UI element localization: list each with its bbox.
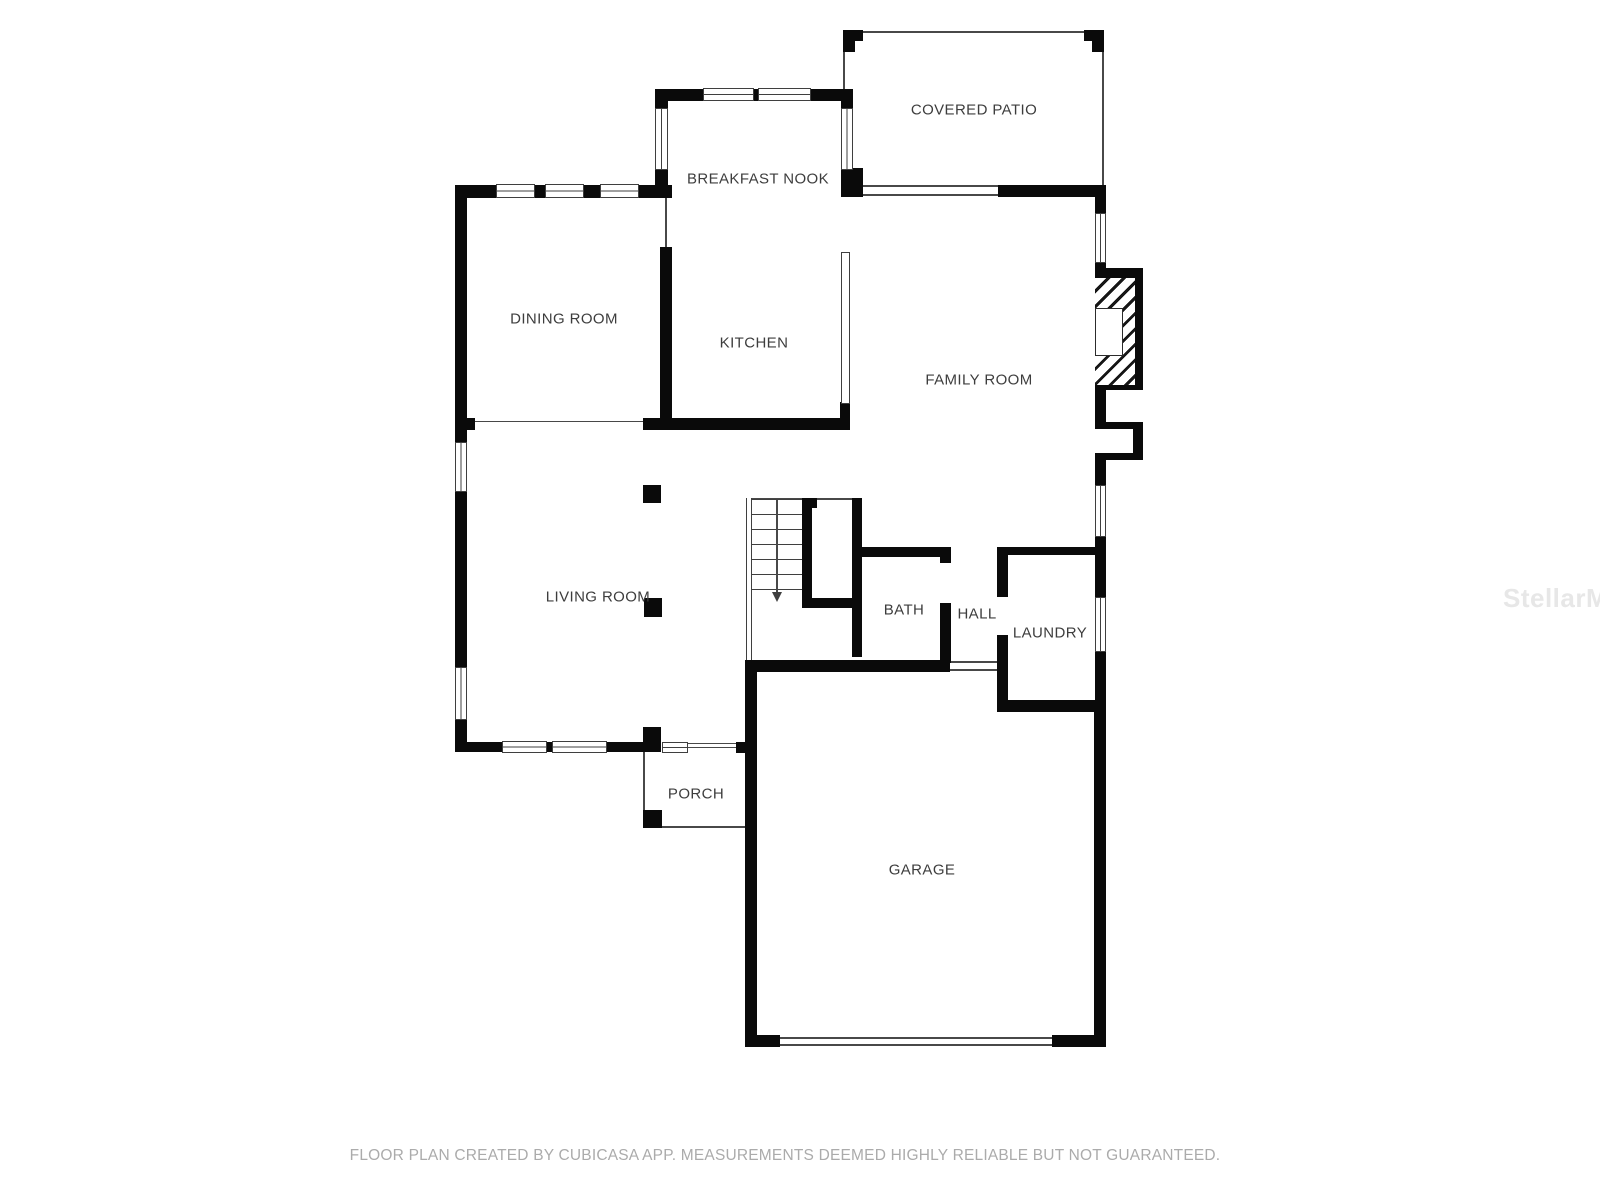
watermark-stellar-mls: StellarMLS (1503, 583, 1600, 614)
stairs-down-arrow (772, 592, 782, 602)
patio-wall-line (1102, 31, 1104, 189)
garage-door-line (780, 1037, 1052, 1039)
room-label-kitchen: KITCHEN (720, 335, 789, 352)
sliding-door-line (863, 185, 998, 187)
room-label-garage: GARAGE (889, 862, 956, 879)
wall-segment (455, 742, 502, 752)
column (643, 485, 661, 503)
window (552, 741, 607, 753)
wall-segment (852, 498, 862, 657)
window (455, 667, 467, 720)
wall-segment (736, 742, 757, 753)
wall-niche-opening (1095, 429, 1133, 453)
wall-segment (660, 418, 850, 430)
patio-wall-line (843, 31, 1104, 33)
opening-line (665, 198, 667, 247)
wall-segment (655, 89, 853, 101)
wall-segment (802, 498, 812, 608)
porch-post (643, 727, 661, 752)
wall-segment (1095, 460, 1106, 485)
wall-segment (1095, 390, 1106, 422)
wall-segment (1095, 197, 1106, 213)
fireplace-firebox (1095, 308, 1123, 356)
wall-segment (802, 498, 817, 508)
window (841, 108, 853, 170)
wall-segment (1095, 537, 1106, 547)
opening-line (475, 421, 643, 422)
stairs-direction-line (776, 500, 778, 594)
patio-corner-post (843, 30, 855, 52)
room-label-breakfast-nook: BREAKFAST NOOK (687, 171, 829, 188)
wall-segment (455, 492, 467, 667)
window (545, 184, 584, 198)
porch-post (643, 810, 662, 828)
door-threshold-line (950, 661, 997, 663)
room-label-dining-room: DINING ROOM (510, 311, 618, 328)
garage-door-line (780, 1044, 1052, 1046)
sliding-door-line (863, 194, 998, 196)
window (1095, 597, 1106, 652)
door-threshold-line (950, 669, 997, 671)
window (502, 741, 547, 753)
wall-segment (455, 418, 475, 430)
wall-segment (607, 742, 645, 752)
footer-disclaimer: FLOOR PLAN CREATED BY CUBICASA APP. MEAS… (0, 1147, 1570, 1165)
wall-segment (940, 547, 951, 563)
room-label-family-room: FAMILY ROOM (925, 372, 1032, 389)
closet-opening-line (815, 498, 852, 500)
porch-edge-line (688, 747, 740, 748)
wall-segment (997, 547, 1008, 597)
wall-segment (1095, 547, 1106, 597)
wall-segment (802, 598, 862, 608)
wall-segment (843, 168, 863, 197)
wall-segment (1052, 1035, 1103, 1047)
window (600, 184, 639, 198)
wall-segment (747, 660, 950, 672)
counter-end-wall (840, 402, 850, 428)
wall-segment (745, 1035, 780, 1047)
room-label-living-room: LIVING ROOM (546, 589, 650, 606)
kitchen-counter (841, 252, 850, 404)
wall-segment (660, 247, 672, 430)
wall-segment (455, 185, 467, 442)
window (703, 88, 754, 101)
wall-segment (745, 660, 757, 1047)
room-label-bath: BATH (884, 602, 925, 619)
room-label-porch: PORCH (668, 786, 724, 803)
wall-segment (998, 185, 1106, 197)
window (1095, 485, 1106, 537)
room-label-hall: HALL (957, 606, 996, 623)
window (455, 442, 467, 492)
window (758, 88, 811, 101)
window (1095, 213, 1106, 263)
wall-segment (997, 547, 1095, 555)
window (496, 184, 535, 198)
wall-segment (997, 700, 1106, 712)
wall-segment (940, 603, 951, 663)
porch-edge-line (688, 743, 740, 744)
front-door-sidelite (662, 742, 688, 753)
room-label-laundry: LAUNDRY (1013, 625, 1087, 642)
patio-corner-post (1092, 30, 1104, 52)
wall-segment (1094, 700, 1106, 1047)
room-label-covered-patio: COVERED PATIO (911, 102, 1037, 119)
window (655, 108, 668, 170)
wall-segment (852, 547, 951, 557)
floor-plan: COVERED PATIO BREAKFAST NOOK DINING ROOM… (0, 0, 1600, 1200)
